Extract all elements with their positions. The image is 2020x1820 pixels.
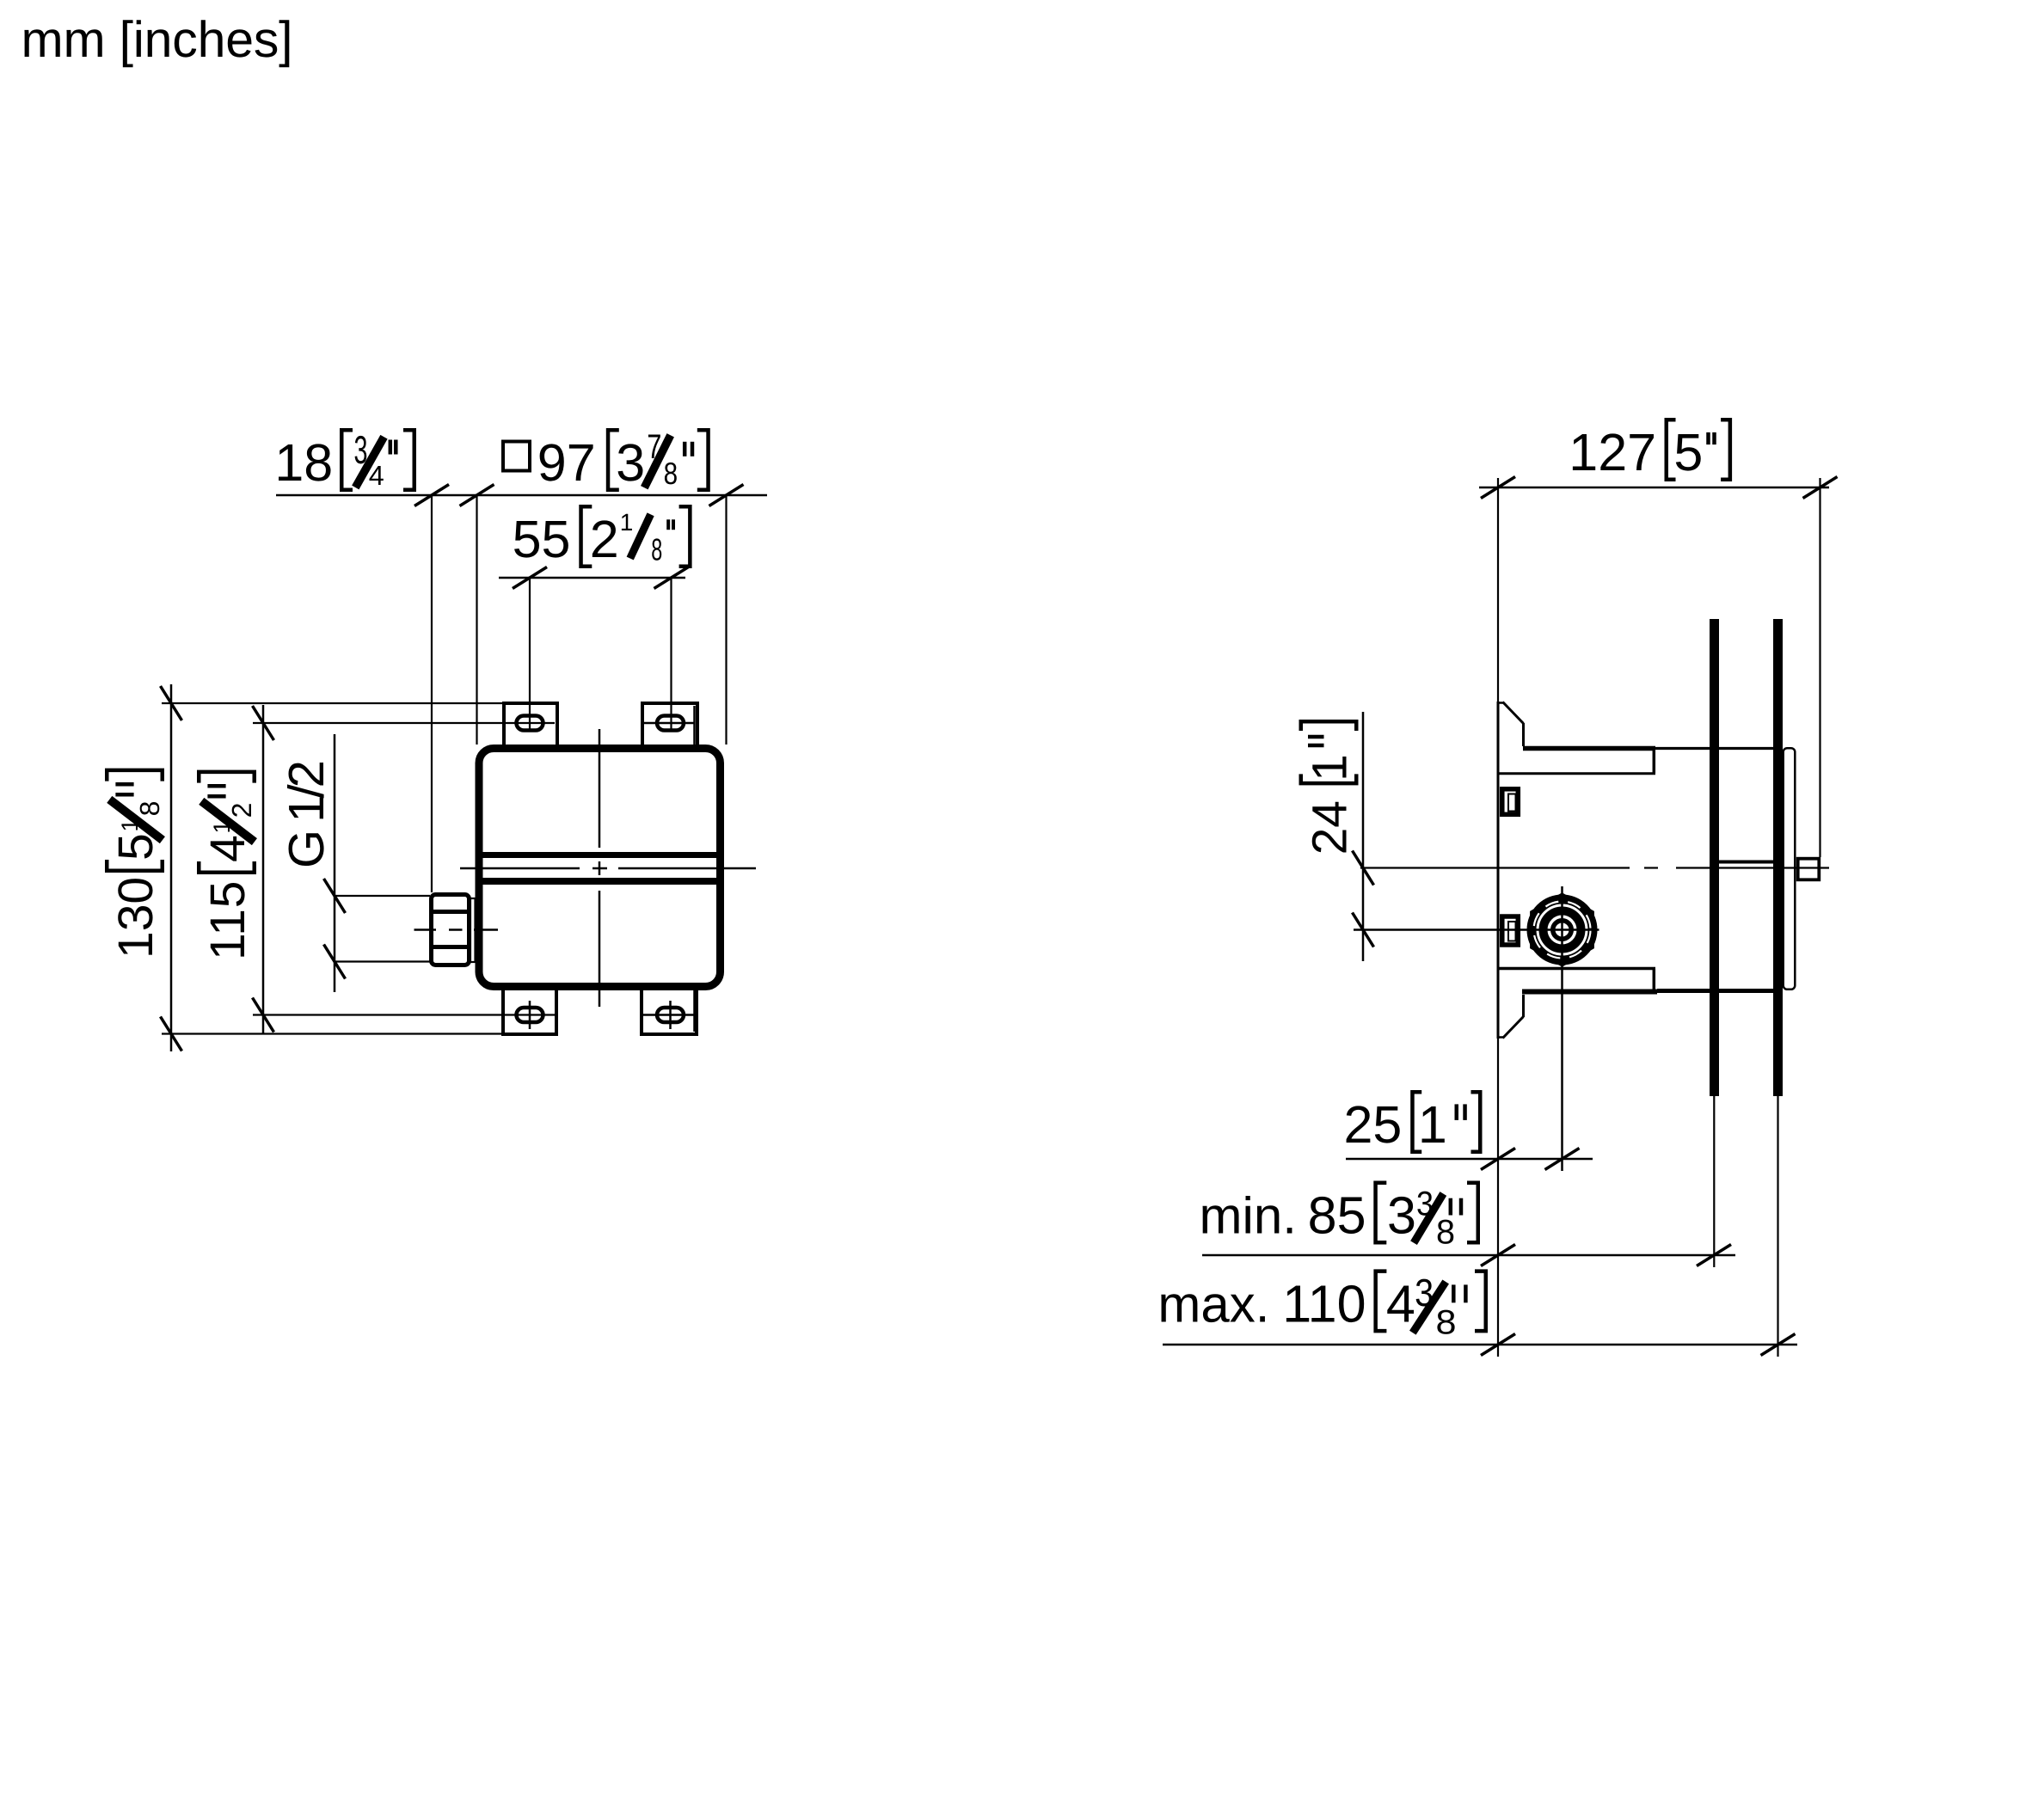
svg-text:1: 1 — [209, 820, 235, 833]
svg-text:3: 3 — [1387, 1186, 1416, 1245]
svg-text:max.: max. — [1157, 1275, 1269, 1333]
svg-text:G 1/2: G 1/2 — [279, 762, 335, 868]
svg-text:2: 2 — [226, 803, 257, 818]
svg-text:55: 55 — [513, 510, 571, 568]
svg-text:110: 110 — [1282, 1274, 1366, 1333]
svg-text:2: 2 — [590, 510, 619, 568]
svg-text:1: 1 — [620, 509, 634, 536]
svg-text:mm [inches]: mm [inches] — [21, 11, 293, 68]
svg-text:115: 115 — [200, 880, 255, 960]
svg-text:127: 127 — [1569, 423, 1656, 481]
svg-text:1: 1 — [1418, 1095, 1447, 1154]
svg-text:25: 25 — [1343, 1095, 1402, 1154]
svg-text:1: 1 — [1303, 754, 1358, 781]
svg-text:3: 3 — [616, 433, 645, 492]
svg-text:3: 3 — [354, 427, 368, 472]
svg-text:7: 7 — [647, 428, 661, 466]
svg-text:4: 4 — [200, 835, 255, 862]
svg-text:3: 3 — [1415, 1271, 1434, 1314]
svg-text:3: 3 — [1416, 1186, 1434, 1223]
svg-text:130: 130 — [108, 877, 163, 959]
svg-text:18: 18 — [274, 433, 333, 492]
svg-text:8: 8 — [651, 532, 662, 567]
svg-text:5: 5 — [1673, 423, 1703, 481]
svg-text:4: 4 — [1386, 1274, 1415, 1333]
svg-text:8: 8 — [134, 801, 165, 817]
svg-text:1: 1 — [117, 818, 143, 831]
svg-text:5: 5 — [108, 833, 163, 861]
svg-text:97: 97 — [537, 433, 596, 492]
svg-text:8: 8 — [1436, 1303, 1457, 1341]
svg-text:24: 24 — [1303, 800, 1358, 855]
svg-text:85: 85 — [1308, 1186, 1366, 1245]
svg-text:8: 8 — [1436, 1214, 1455, 1252]
svg-text:4: 4 — [369, 460, 384, 491]
svg-text:min.: min. — [1200, 1187, 1297, 1245]
svg-text:8: 8 — [664, 456, 678, 491]
